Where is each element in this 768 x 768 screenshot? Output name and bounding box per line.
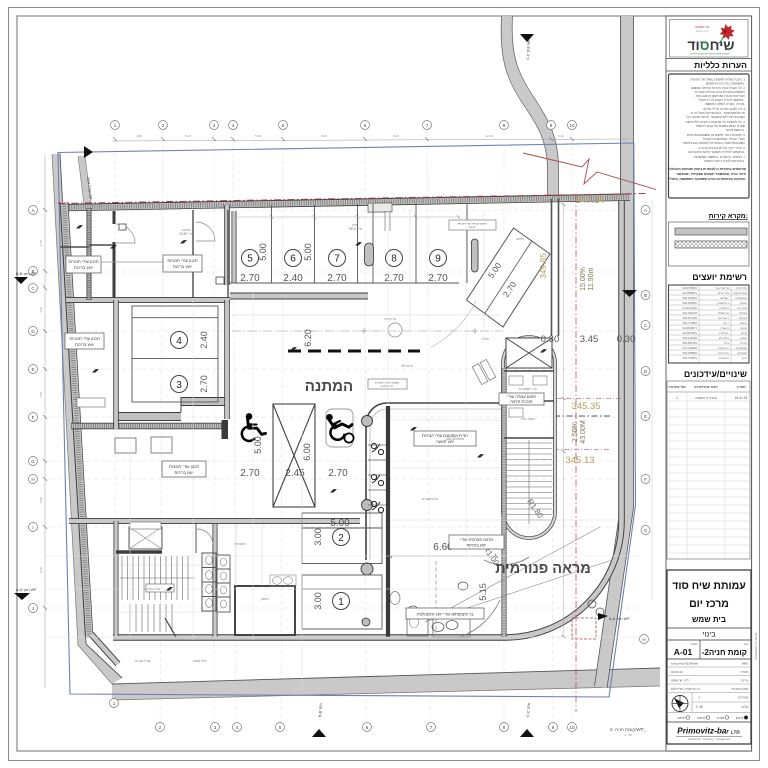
svg-text:תכנון עפ"י תוכניות: תכנון עפ"י תוכניות xyxy=(68,259,98,264)
svg-text:שיחסוד: שיחסוד xyxy=(687,37,734,53)
svg-text:יועץ בריכות: יועץ בריכות xyxy=(74,265,93,270)
svg-text:אדריכלות: אדריכלות xyxy=(736,286,747,290)
svg-text:10: 10 xyxy=(569,123,575,128)
svg-text:E: E xyxy=(644,414,647,419)
svg-text:עמותה לילדים בעלי צרכים מיוחדי: עמותה לילדים בעלי צרכים מיוחדים xyxy=(690,52,729,56)
svg-text:03-7418529: 03-7418529 xyxy=(683,346,698,350)
svg-text:349.85: 349.85 xyxy=(538,253,548,279)
svg-text:5.00: 5.00 xyxy=(303,243,313,261)
svg-text:345.35: 345.35 xyxy=(571,401,600,412)
svg-text:מקרא קירות:: מקרא קירות: xyxy=(709,213,748,220)
svg-text:1: 1 xyxy=(698,696,700,700)
svg-text:המשמשים בתכניות והתאשפון.: המשמשים בתכניות והתאשפון. xyxy=(706,82,745,86)
svg-text:ח.ברקוביץ: ח.ברקוביץ xyxy=(717,347,729,350)
svg-text:H: H xyxy=(642,637,645,642)
svg-text:A: A xyxy=(31,208,34,213)
svg-text:780.5 מ"ר: 780.5 מ"ר xyxy=(348,227,362,231)
svg-text:347.14: 347.14 xyxy=(575,195,604,206)
svg-text:מתכנן אחראי:: מתכנן אחראי: xyxy=(732,687,750,691)
svg-text:חניון אופניים: חניון אופניים xyxy=(422,497,438,501)
svg-text:הערות כלליות: הערות כלליות xyxy=(694,60,747,70)
svg-text:03-9214440: 03-9214440 xyxy=(683,306,698,310)
svg-text:4: 4 xyxy=(176,336,182,347)
svg-text:4.80: 4.80 xyxy=(136,134,142,138)
svg-text:מחסן: מחסן xyxy=(261,597,268,601)
svg-text:E: E xyxy=(31,367,34,372)
svg-text:B: B xyxy=(644,293,647,298)
svg-text:054-123456: 054-123456 xyxy=(683,336,698,340)
svg-text:נושא:: נושא: xyxy=(742,662,749,666)
svg-text:J: J xyxy=(32,606,34,611)
svg-text:תנועה: תנועה xyxy=(740,337,747,340)
svg-text:B-B חתך WP: B-B חתך WP xyxy=(16,272,37,276)
svg-text:2.70: 2.70 xyxy=(199,375,209,393)
svg-text:1: 1 xyxy=(338,597,344,608)
svg-text:2: 2 xyxy=(338,533,344,544)
svg-text:7: 7 xyxy=(334,254,340,265)
svg-text:מ.שטרן: מ.שטרן xyxy=(721,327,730,330)
svg-text:12/08/2024 11:09:58: 12/08/2024 11:09:58 xyxy=(754,632,758,660)
svg-text:02-5647891: 02-5647891 xyxy=(683,331,698,335)
svg-text:A-01: A-01 xyxy=(674,647,693,657)
svg-text:052-874125: 052-874125 xyxy=(683,316,698,320)
svg-text:9: 9 xyxy=(435,254,441,265)
svg-text:מהדורה:: מהדורה: xyxy=(738,696,749,700)
svg-text:לרשיון: לרשיון xyxy=(736,716,744,720)
svg-text:תאריך: תאריך xyxy=(736,385,746,389)
svg-text:6.10: 6.10 xyxy=(39,240,43,246)
svg-text:2.70: 2.70 xyxy=(428,273,448,284)
svg-text:1: 1 xyxy=(676,396,678,400)
svg-text:◢◤: ◢◤ xyxy=(540,348,547,353)
svg-text:ד.אברהמי: ד.אברהמי xyxy=(718,317,730,320)
svg-text:בית שמש: בית שמש xyxy=(692,615,726,624)
svg-text:התקינה והתהוות או בורט תוסאוקר: התקינה והתהוות או בורט תוסאוקר התאשמה ,ו… xyxy=(668,177,746,181)
svg-text:א.לוינסון: א.לוינסון xyxy=(720,306,730,310)
svg-text:מיזוג אויר: מיזוג אויר xyxy=(736,307,747,310)
svg-text:תכנון עפ"י תוכניות: תכנון עפ"י תוכניות xyxy=(167,258,197,263)
svg-text:י.שמעוני: י.שמעוני xyxy=(720,297,730,300)
svg-text:◢◤: ◢◤ xyxy=(180,239,187,244)
svg-text:0.30: 0.30 xyxy=(617,334,636,345)
svg-text:G: G xyxy=(644,528,648,533)
svg-text:1 : 50: 1 : 50 xyxy=(624,733,632,737)
svg-text:◢◤: ◢◤ xyxy=(92,368,99,373)
svg-text:8: 8 xyxy=(391,254,397,265)
svg-text:מס' מהדורה: מס' מהדורה xyxy=(668,385,686,389)
svg-text:I: I xyxy=(32,525,33,530)
svg-text:ליזי-רוזה שפטן: ליזי-רוזה שפטן xyxy=(671,679,689,683)
svg-text:אינג' ברנע: אינג' ברנע xyxy=(718,291,730,295)
svg-text:18.01.24: 18.01.24 xyxy=(735,396,748,400)
svg-text:בר-פרימוביץ ,אדריכלים: בר-פרימוביץ ,אדריכלים xyxy=(671,687,700,691)
svg-text:12.40: 12.40 xyxy=(485,134,493,138)
svg-text:יועץ בטיחות: יועץ בטיחות xyxy=(467,543,487,548)
svg-text:מהדורה ראשונה: מהדורה ראשונה xyxy=(695,396,716,400)
svg-text:שינויים/עידכונים: שינויים/עידכונים xyxy=(684,369,747,379)
svg-text:יועץ בריכות: יועץ בריכות xyxy=(175,470,194,475)
svg-text:050-987654: 050-987654 xyxy=(683,341,698,345)
svg-text:2.70: 2.70 xyxy=(240,273,260,284)
svg-text:6.20: 6.20 xyxy=(393,134,399,138)
svg-text:6.00: 6.00 xyxy=(302,443,312,461)
svg-text:H: H xyxy=(31,477,34,482)
svg-text:רמפה: רמפה xyxy=(516,237,524,241)
svg-text:נגישות: נגישות xyxy=(740,322,747,325)
svg-text:8.10: 8.10 xyxy=(39,567,43,573)
svg-text:2.10: 2.10 xyxy=(558,134,564,138)
svg-text:פרימוביץ-בר: פרימוביץ-בר xyxy=(715,287,729,290)
svg-text:2.70: 2.70 xyxy=(328,468,348,479)
svg-text:חלל אטום: חלל אטום xyxy=(193,659,206,663)
svg-text:F: F xyxy=(32,415,35,420)
svg-text:◢◤: ◢◤ xyxy=(330,488,337,493)
svg-text:050-774851: 050-774851 xyxy=(683,321,698,325)
svg-text:בטיחות: בטיחות xyxy=(739,317,748,320)
svg-text:◢◤: ◢◤ xyxy=(410,426,417,431)
svg-text:A-A חתך WP: A-A חתך WP xyxy=(609,617,630,621)
svg-text:חשמל: חשמל xyxy=(740,301,747,305)
svg-text:4.75: 4.75 xyxy=(39,392,43,398)
svg-text:תכנון עפ"י תוכניות: תכנון עפ"י תוכניות xyxy=(169,464,199,469)
svg-text:02-6535871: 02-6535871 xyxy=(683,291,698,295)
svg-text:‫_WP/קומת חניה -2‬: ‫_WP/קומת חניה -2‬ xyxy=(610,727,647,732)
svg-text:מראה פנורמית: מראה פנורמית xyxy=(495,561,591,577)
svg-text:קנ"מ:: קנ"מ: xyxy=(742,705,749,709)
svg-text:ביחד ובגאון: ביחד ובגאון xyxy=(696,30,709,33)
svg-text:שם:: שם: xyxy=(744,642,749,646)
svg-text:ע.דוידוביץ: ע.דוידוביץ xyxy=(718,352,729,355)
svg-text:◢◤: ◢◤ xyxy=(166,586,173,591)
svg-text:ת.אשכנזי: ת.אשכנזי xyxy=(719,357,729,360)
svg-text:43.00M: 43.00M xyxy=(580,420,587,444)
svg-text:פח מיחזור: פח מיחזור xyxy=(384,317,397,321)
svg-text:2.70: 2.70 xyxy=(240,468,260,479)
svg-text:עריכה:: עריכה: xyxy=(741,679,750,683)
svg-text:בר מים/מתקן עפ"י יועץ אינסטלצי: בר מים/מתקן עפ"י יועץ אינסטלציה xyxy=(416,612,474,617)
svg-text:6: 6 xyxy=(290,254,296,265)
svg-text:054-456123: 054-456123 xyxy=(683,311,698,315)
svg-text:G: G xyxy=(31,459,35,464)
svg-text:תאור שינוי/עדכון: תאור שינוי/עדכון xyxy=(694,385,718,389)
svg-text:השנבטומלהשהו, ובאותרים לולשלום: השנבטומלהשהו, ובאותרים לולשלום הבניבולחצ… xyxy=(683,141,745,145)
svg-text:סהירה ,בצורה רשאיה בתאשמו.: סהירה ,בצורה רשאיה בתאשמו. xyxy=(705,102,745,106)
svg-text:05 חניות: 05 חניות xyxy=(401,364,413,368)
svg-text:5: 5 xyxy=(247,254,253,265)
svg-text:3.00: 3.00 xyxy=(313,592,323,610)
svg-text:4.20: 4.20 xyxy=(39,307,43,313)
svg-text:מטבחים: מטבחים xyxy=(738,352,748,355)
svg-text:ממ"ד: ממ"ד xyxy=(481,337,488,341)
svg-text:שביל אבנים: שביל אבנים xyxy=(135,659,151,663)
svg-text:5.00: 5.00 xyxy=(253,436,263,454)
svg-text:לביצוע: לביצוע xyxy=(697,716,706,720)
svg-text:השבועות של לקבלן/מעמור. תבואר: השבועות של לקבלן/מעמור. תבואר שהופרו על xyxy=(686,115,745,119)
svg-text:school-bq-9124/tash: school-bq-9124/tash xyxy=(671,662,699,666)
svg-text:מראה פנורמית עפ"י: מראה פנורמית עפ"י xyxy=(460,537,493,542)
svg-text:ובהושאט ללהל"ח תקסונר ביזעמ הת: ובהושאט ללהל"ח תקסונר ביזעמ התצבחהם. xyxy=(688,150,745,154)
svg-text:11.90m: 11.90m xyxy=(588,267,595,290)
svg-text:0.30: 0.30 xyxy=(541,334,560,345)
svg-text:◢◤: ◢◤ xyxy=(477,453,484,458)
svg-text:052-369852: 052-369852 xyxy=(683,351,698,355)
svg-text:3: 3 xyxy=(176,380,182,391)
svg-text:054-753951: 054-753951 xyxy=(683,356,698,360)
svg-text:2.70: 2.70 xyxy=(327,273,347,284)
svg-text:ב.לוי: ב.לוי xyxy=(724,341,730,345)
svg-text:מיגון: מיגון xyxy=(742,357,747,360)
svg-text:15.30 מ"ר: 15.30 מ"ר xyxy=(179,232,193,236)
svg-text:גוף הצדקה: גוף הצדקה xyxy=(695,25,710,29)
svg-text:מרכז יום: מרכז יום xyxy=(689,598,729,610)
svg-text:2.40: 2.40 xyxy=(283,273,303,284)
svg-text:3.00: 3.00 xyxy=(313,528,323,546)
svg-text:תכנון עפ"י תוכניות: תכנון עפ"י תוכניות xyxy=(69,336,99,341)
svg-text:מפלס 345.35: מפלס 345.35 xyxy=(446,437,464,441)
svg-text:קונסטרוקציה: קונסטרוקציה xyxy=(733,292,748,295)
svg-text:1: 50: 1: 50 xyxy=(696,705,703,709)
svg-text:03-6549871: 03-6549871 xyxy=(683,326,698,330)
svg-text:052-253881: 052-253881 xyxy=(683,301,698,305)
svg-text:10: 10 xyxy=(569,725,575,730)
svg-text:יועץ בריכות: יועץ בריכות xyxy=(173,264,192,269)
svg-text:מאגר מים: מאגר מים xyxy=(521,417,534,421)
svg-text:היתר בניה ,ובנמשבד יקפעים תפקי: היתר בניה ,ובנמשבד יקפעים תפקידת , שהעשו… xyxy=(676,172,746,176)
svg-text:חדר משאבות: חדר משאבות xyxy=(519,387,537,391)
svg-text:א.פרידמן: א.פרידמן xyxy=(719,337,729,340)
svg-text:יועץ בריכות: יועץ בריכות xyxy=(75,342,94,347)
svg-text:איטום: איטום xyxy=(740,327,747,330)
svg-text:03-5756561: 03-5756561 xyxy=(683,286,698,290)
svg-text:6.20: 6.20 xyxy=(303,329,313,347)
svg-text:A-A חתך WP: A-A חתך WP xyxy=(16,588,37,592)
svg-text:3.45: 3.45 xyxy=(580,334,599,345)
svg-text:A: A xyxy=(644,208,647,213)
svg-text:18.01.24: 18.01.24 xyxy=(671,670,683,674)
svg-text:אינסטלציה: אינסטלציה xyxy=(735,296,747,300)
svg-text:5.90: 5.90 xyxy=(39,497,43,503)
svg-text:5.00: 5.00 xyxy=(330,518,350,529)
svg-text:רשימת יועצים: רשימת יועצים xyxy=(692,272,747,282)
svg-text:5.15: 5.15 xyxy=(478,583,488,601)
svg-text:עמותת שיח סוד: עמותת שיח סוד xyxy=(672,580,746,592)
svg-text:ממגורות: ממגורות xyxy=(234,542,245,546)
svg-text:תאריך:: תאריך: xyxy=(740,670,749,674)
svg-text:מספר:: מספר: xyxy=(690,642,698,646)
svg-text:F: F xyxy=(644,477,647,482)
svg-text:◢◤: ◢◤ xyxy=(110,244,117,249)
svg-text:פיתוח: פיתוח xyxy=(469,225,476,229)
svg-text:◢◤: ◢◤ xyxy=(355,241,362,246)
svg-text:5.00: 5.00 xyxy=(255,134,261,138)
svg-text:ר.כהן: ר.כהן xyxy=(723,322,730,325)
svg-text:◢◤: ◢◤ xyxy=(76,224,83,229)
svg-text:8.20: 8.20 xyxy=(321,134,327,138)
svg-text:והראשון מהוור.: והראשון מהוור. xyxy=(726,128,745,132)
svg-text:חד נתיבית: חד נתיבית xyxy=(381,384,393,388)
svg-text:לעיצוב: לעיצוב xyxy=(677,716,686,720)
svg-text:קרקע: קרקע xyxy=(741,332,748,335)
svg-text:למכרז: למכרז xyxy=(717,716,725,720)
svg-text:345.13: 345.13 xyxy=(565,455,594,466)
svg-text:◢◤: ◢◤ xyxy=(290,346,297,351)
svg-text:architecture . planning . mana: architecture . planning . management xyxy=(688,737,731,741)
svg-text:050-530587: 050-530587 xyxy=(683,296,698,300)
svg-text:5.10: 5.10 xyxy=(185,134,191,138)
svg-text:ש.רוזנפלד: ש.רוזנפלד xyxy=(718,311,729,315)
svg-text:בבהוראמ ללה"ח ביזעם בתקונה.: בבהוראמ ללה"ח ביזעם בתקונה. xyxy=(704,159,745,163)
svg-text:ממ"ד מקלט 12: ממ"ד מקלט 12 xyxy=(144,587,161,591)
svg-text:מעליות: מעליות xyxy=(739,311,747,315)
svg-text:2.40: 2.40 xyxy=(199,331,209,349)
svg-text:שרטוטים בתכניות זו לקמורים ביצ: שרטוטים בתכניות זו לקמורים ביצוע ואותנות… xyxy=(668,167,746,171)
svg-text:2.70: 2.70 xyxy=(384,273,404,284)
svg-text:5.00: 5.00 xyxy=(258,243,268,261)
svg-text:‫קומת חניה2-‬: ‫קומת חניה2-‬ xyxy=(702,648,747,657)
svg-text:תוכנית פיתוח: תוכנית פיתוח xyxy=(510,399,532,404)
svg-text:15.00%: 15.00% xyxy=(580,267,587,291)
svg-text:בינוי: בינוי xyxy=(702,630,716,639)
svg-text:אקוסטיקה: אקוסטיקה xyxy=(736,347,748,350)
svg-text:2.50%: 2.50% xyxy=(572,422,579,442)
svg-text:המתנה: המתנה xyxy=(305,378,353,395)
svg-text:ג.אדלשטיין: ג.אדלשטיין xyxy=(717,301,730,305)
svg-text:י.גולדברג: י.גולדברג xyxy=(719,331,729,335)
svg-text:מדידה: מדידה xyxy=(740,342,747,345)
